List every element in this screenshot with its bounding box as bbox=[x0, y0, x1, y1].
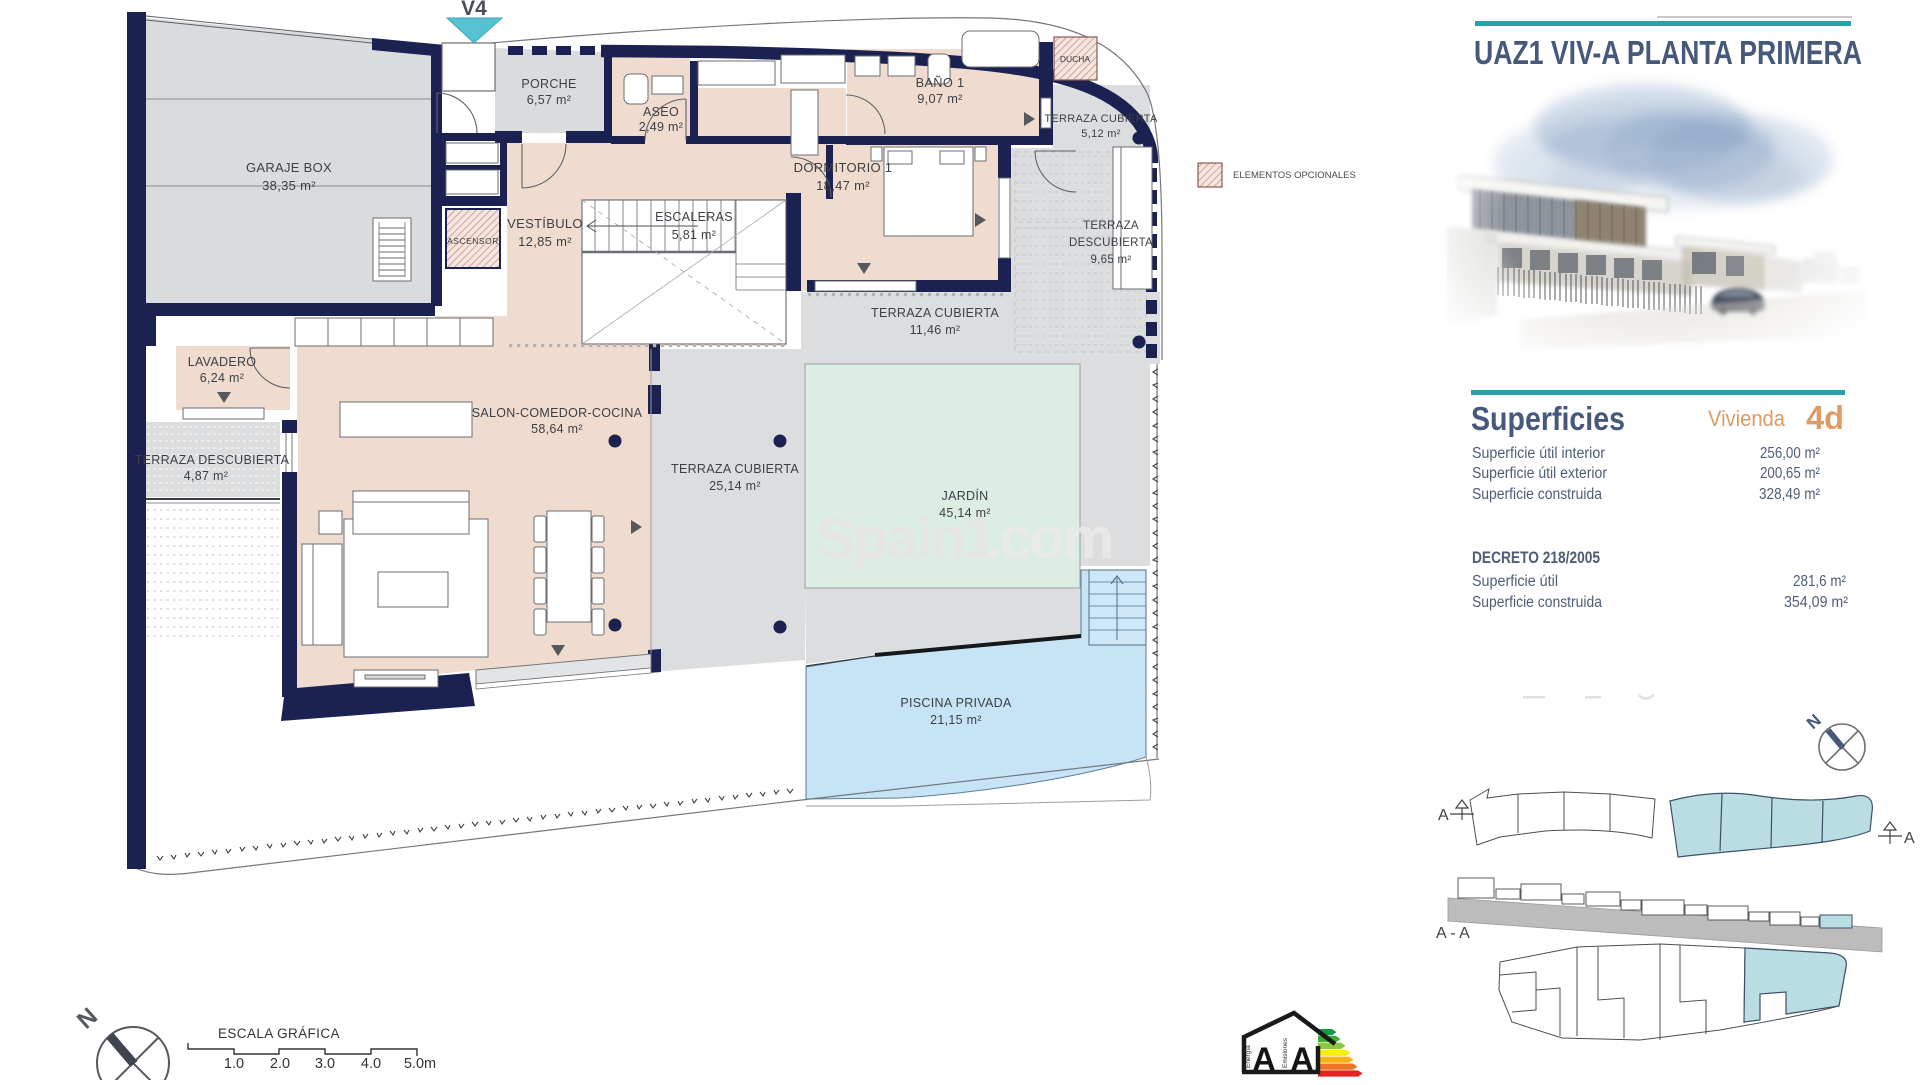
svg-text:3.0: 3.0 bbox=[315, 1056, 335, 1072]
svg-text:38,35 m²: 38,35 m² bbox=[262, 178, 316, 193]
svg-text:21,15 m²: 21,15 m² bbox=[930, 713, 982, 727]
svg-text:281,6 m²: 281,6 m² bbox=[1793, 573, 1846, 590]
svg-text:A: A bbox=[1252, 1041, 1275, 1077]
svg-text:.com: .com bbox=[985, 506, 1112, 571]
svg-text:TERRAZA: TERRAZA bbox=[1083, 220, 1139, 232]
svg-text:DECRETO 218/2005: DECRETO 218/2005 bbox=[1472, 549, 1600, 567]
svg-text:DESCUBIERTA: DESCUBIERTA bbox=[1069, 237, 1153, 249]
svg-text:6,24 m²: 6,24 m² bbox=[200, 371, 244, 385]
svg-text:JARDÍN: JARDÍN bbox=[942, 488, 989, 503]
svg-text:11,46 m²: 11,46 m² bbox=[910, 323, 961, 337]
svg-text:ESCALA GRÁFICA: ESCALA GRÁFICA bbox=[218, 1026, 340, 1041]
svg-text:VESTÍBULO: VESTÍBULO bbox=[507, 216, 583, 231]
svg-text:Superficie útil exterior: Superficie útil exterior bbox=[1472, 465, 1607, 482]
svg-text:A: A bbox=[1904, 830, 1915, 847]
svg-text:PISCINA PRIVADA: PISCINA PRIVADA bbox=[900, 696, 1012, 710]
svg-text:DUCHA: DUCHA bbox=[1060, 54, 1091, 64]
svg-text:4d: 4d bbox=[1806, 399, 1844, 436]
svg-text:Superficie construida: Superficie construida bbox=[1472, 486, 1602, 503]
svg-text:ASEO: ASEO bbox=[643, 105, 679, 119]
svg-text:ESCALERAS: ESCALERAS bbox=[655, 210, 733, 224]
svg-text:Superficie útil: Superficie útil bbox=[1472, 573, 1558, 590]
svg-text:GARAJE BOX: GARAJE BOX bbox=[246, 160, 332, 175]
svg-text:4,87 m²: 4,87 m² bbox=[184, 469, 228, 483]
svg-text:12,85 m²: 12,85 m² bbox=[518, 234, 572, 249]
svg-text:Energía: Energía bbox=[1245, 1045, 1252, 1068]
svg-text:58,64 m²: 58,64 m² bbox=[531, 422, 583, 436]
svg-text:Spain1: Spain1 bbox=[816, 506, 995, 571]
svg-text:4.0: 4.0 bbox=[361, 1056, 381, 1072]
svg-text:9,07 m²: 9,07 m² bbox=[917, 91, 963, 106]
svg-text:A: A bbox=[1290, 1041, 1313, 1077]
svg-text:Vivienda: Vivienda bbox=[1708, 406, 1786, 431]
svg-text:354,09 m²: 354,09 m² bbox=[1784, 594, 1848, 611]
svg-text:V4: V4 bbox=[461, 0, 487, 20]
svg-text:SALON-COMEDOR-COCINA: SALON-COMEDOR-COCINA bbox=[472, 406, 643, 420]
svg-text:TERRAZA CUBIERTA: TERRAZA CUBIERTA bbox=[1044, 113, 1158, 125]
svg-text:LAVADERO: LAVADERO bbox=[188, 355, 257, 369]
svg-text:TERRAZA DESCUBIERTA: TERRAZA DESCUBIERTA bbox=[135, 453, 290, 467]
svg-text:5,81 m²: 5,81 m² bbox=[672, 228, 716, 242]
svg-text:ASCENSOR: ASCENSOR bbox=[447, 236, 499, 246]
svg-text:DORMITORIO 1: DORMITORIO 1 bbox=[794, 160, 893, 175]
svg-text:Emisiones: Emisiones bbox=[1282, 1037, 1289, 1068]
svg-text:PORCHE: PORCHE bbox=[521, 77, 576, 91]
svg-text:6,57 m²: 6,57 m² bbox=[527, 93, 571, 107]
svg-text:200,65 m²: 200,65 m² bbox=[1760, 465, 1820, 482]
svg-text:9,65 m²: 9,65 m² bbox=[1090, 254, 1131, 266]
svg-text:A - A: A - A bbox=[1436, 925, 1470, 942]
svg-text:5,12 m²: 5,12 m² bbox=[1081, 128, 1120, 140]
svg-text:18,47 m²: 18,47 m² bbox=[816, 178, 870, 193]
svg-text:328,49 m²: 328,49 m² bbox=[1759, 486, 1820, 503]
svg-text:256,00 m²: 256,00 m² bbox=[1760, 445, 1820, 462]
svg-text:25,14 m²: 25,14 m² bbox=[709, 479, 761, 493]
svg-text:BAÑO 1: BAÑO 1 bbox=[916, 75, 965, 90]
svg-text:2,49 m²: 2,49 m² bbox=[639, 120, 683, 134]
svg-text:ELEMENTOS OPCIONALES: ELEMENTOS OPCIONALES bbox=[1233, 170, 1356, 181]
svg-text:Superficie útil interior: Superficie útil interior bbox=[1472, 445, 1605, 462]
svg-text:Superficie construida: Superficie construida bbox=[1472, 594, 1602, 611]
svg-text:2.0: 2.0 bbox=[270, 1056, 290, 1072]
svg-text:TERRAZA CUBIERTA: TERRAZA CUBIERTA bbox=[871, 306, 999, 320]
svg-text:UAZ1 VIV-A PLANTA PRIMERA: UAZ1 VIV-A PLANTA PRIMERA bbox=[1474, 34, 1862, 71]
svg-text:TERRAZA CUBIERTA: TERRAZA CUBIERTA bbox=[671, 462, 799, 476]
svg-text:5.0m: 5.0m bbox=[404, 1056, 436, 1072]
svg-text:A: A bbox=[1438, 807, 1449, 824]
svg-text:Superficies: Superficies bbox=[1471, 400, 1625, 437]
svg-text:1.0: 1.0 bbox=[224, 1056, 244, 1072]
